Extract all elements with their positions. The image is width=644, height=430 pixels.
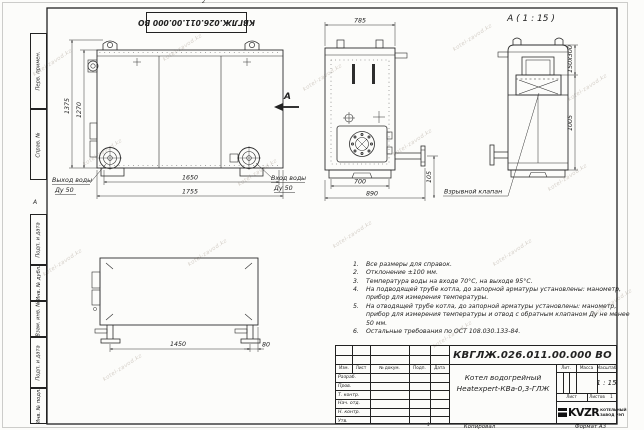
- sidebar-label: Взам. инв. №: [36, 301, 42, 336]
- rev-col-data: Дата: [430, 365, 449, 370]
- notes-list: 1.Все размеры для справок. 2.Отклонение …: [353, 261, 633, 336]
- view-side: [88, 41, 283, 176]
- top-stamp-text: КВГЛЖ.026.011.00.000 ВО: [138, 18, 255, 27]
- dim-front-width-total: 890: [366, 191, 378, 198]
- sheets-label: Листов: [587, 394, 607, 399]
- sidebar-item-podp-data-2: Подп. и дата: [30, 337, 47, 388]
- sidebar-item-sprav-no: Справ. №: [30, 109, 47, 180]
- note-item: 5.На отводящей трубе котла, до запорной …: [353, 303, 633, 328]
- staff-row-prov: Пров.: [336, 382, 372, 390]
- view-section: [490, 38, 568, 177]
- rev-col-list: Лист: [352, 365, 370, 370]
- view-side-dims: [52, 40, 305, 199]
- note-item: 6.Остальные требования по ОСТ 108.030.13…: [353, 328, 633, 336]
- kvzr-logo-icon: [558, 408, 567, 417]
- product-name-line1: Котел водогрейный: [465, 373, 542, 384]
- company-logo: KVZR КОТЕЛЬНЫЙ ЗАВОД РЭП: [558, 402, 616, 423]
- dim-front-width-top: 785: [354, 18, 366, 25]
- lit-label: Лит.: [556, 365, 576, 370]
- label-water-inlet: Вход воды: [271, 175, 306, 182]
- dim-side-height-body: 1270: [76, 102, 83, 118]
- note-number: 1.: [353, 261, 366, 269]
- note-item: 2.Отклонение ±100 мм.: [353, 269, 633, 277]
- sidebar-label: Инв. № подл.: [36, 388, 42, 424]
- staff-row-tkontr: Т. контр.: [336, 391, 372, 399]
- dim-front-width-inner: 700: [354, 179, 366, 186]
- sidebar-label: Подп. и дата: [36, 222, 42, 257]
- dim-section-height: 1005: [567, 115, 574, 131]
- rev-col-podp: Подп.: [409, 365, 430, 370]
- note-number: 3.: [353, 278, 366, 286]
- dim-side-width-total: 1755: [182, 189, 198, 196]
- frame-zone-left: А: [33, 199, 37, 206]
- staff-row-razrab: Разраб.: [336, 374, 372, 382]
- note-item: 1.Все размеры для справок.: [353, 261, 633, 269]
- label-water-inlet-dn: Ду 50: [273, 185, 293, 192]
- note-text: На отводящей трубе котла, до запорной ар…: [366, 303, 633, 328]
- sheets-value: 1: [607, 394, 616, 399]
- title-block: Изм. Лист № докум. Подп. Дата Разраб. Пр…: [335, 345, 617, 424]
- sidebar-item-vzam-inv: Взам. инв. №: [30, 301, 47, 337]
- frame-zone-top: 2: [202, 0, 205, 5]
- sidebar-item-podp-data-1: Подп. и дата: [30, 214, 47, 265]
- sheet-label: Лист: [556, 394, 587, 399]
- sidebar-label: Подп. и дата: [36, 345, 42, 380]
- label-water-outlet: Выход воды: [52, 177, 92, 184]
- company-name: КОТЕЛЬНЫЙ ЗАВОД РЭП: [600, 408, 626, 417]
- rev-col-izm: Изм.: [336, 365, 352, 370]
- label-explosion-valve: Взрывной клапан: [444, 189, 502, 196]
- sidebar-item-inv-dubl: Инв. № дубл.: [30, 265, 47, 301]
- note-text: Отклонение ±100 мм.: [366, 269, 633, 277]
- staff-row-nkontr: Н. контр.: [336, 408, 372, 416]
- view-front: [325, 40, 425, 178]
- dim-section-opening: 150х300: [567, 45, 574, 73]
- dim-side-height-total: 1375: [64, 98, 71, 114]
- product-name-line2: Heatexpert-КВа-0,3-ГЛЖ: [457, 384, 550, 395]
- section-arrow-label: А: [283, 92, 291, 102]
- dim-side-width-inner: 1650: [182, 175, 198, 182]
- view-plan: [92, 258, 260, 343]
- title-block-doc-number: КВГЛЖ.026.011.00.000 ВО: [449, 346, 616, 364]
- staff-row-nachotd: Нач. отд.: [336, 400, 372, 408]
- scale-label: Масштаб: [597, 365, 616, 370]
- section-view-title: А ( 1 : 15 ): [506, 14, 555, 24]
- note-number: 5.: [353, 303, 366, 328]
- note-text: Температура воды на входе 70°С, на выход…: [366, 278, 633, 286]
- sidebar-item-inv-podl: Инв. № подл.: [30, 388, 47, 424]
- note-item: 3.Температура воды на входе 70°С, на вых…: [353, 278, 633, 286]
- sidebar-label: Справ. №: [36, 132, 42, 157]
- mass-label: Масса: [576, 365, 597, 370]
- kvzr-logo-text: KVZR: [568, 406, 599, 419]
- dim-front-pipe-height: 105: [426, 171, 433, 183]
- top-stamp-doc-number: КВГЛЖ.026.011.00.000 ВО: [146, 12, 247, 33]
- dim-plan-leg-span: 1450: [170, 341, 186, 348]
- note-number: 2.: [353, 269, 366, 277]
- note-text: Все размеры для справок.: [366, 261, 633, 269]
- note-item: 4.На подводящей трубе котла, до запорной…: [353, 286, 633, 303]
- note-number: 6.: [353, 328, 366, 336]
- rev-col-docnum: № докум.: [370, 365, 409, 370]
- footer-format-label: Формат А3: [553, 424, 628, 430]
- drawing-sheet: kotel-zavod.kz kotel-zavod.kz kotel-zavo…: [0, 0, 644, 430]
- scale-value: 1 : 15: [597, 376, 616, 390]
- dim-plan-edge-offset: 80: [262, 342, 270, 349]
- sidebar-item-perv-primen: Перв. примен.: [30, 33, 47, 109]
- staff-row-utv: Утв.: [336, 417, 372, 425]
- note-number: 4.: [353, 286, 366, 303]
- view-section-dims: [443, 45, 578, 196]
- sidebar-label: Перв. примен.: [36, 52, 42, 91]
- product-name: Котел водогрейный Heatexpert-КВа-0,3-ГЛЖ: [450, 364, 556, 404]
- company-name-line2: ЗАВОД РЭП: [600, 413, 626, 418]
- note-text: На подводящей трубе котла, до запорной а…: [366, 286, 633, 303]
- label-water-outlet-dn: Ду 50: [54, 187, 74, 194]
- view-front-dims: [325, 22, 438, 201]
- note-text: Остальные требования по ОСТ 108.030.133-…: [366, 328, 633, 336]
- company-name-line1: КОТЕЛЬНЫЙ: [600, 408, 626, 413]
- sidebar-label: Инв. № дубл.: [36, 265, 42, 301]
- footer-copied-label: Копировал: [442, 424, 517, 430]
